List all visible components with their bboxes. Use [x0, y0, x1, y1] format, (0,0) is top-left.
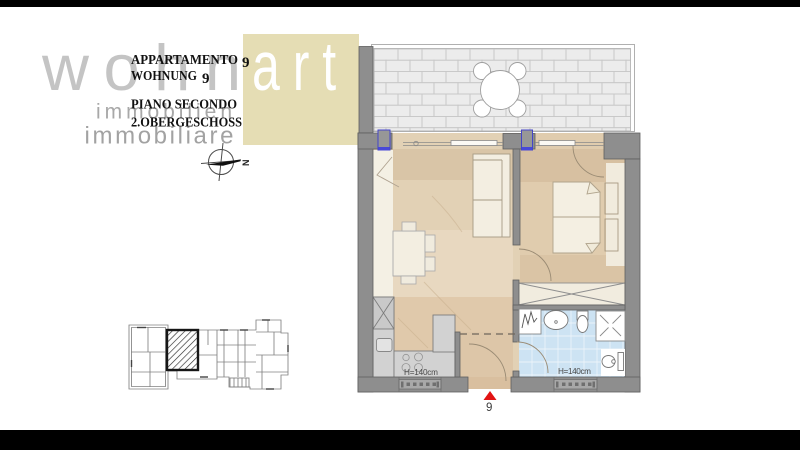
svg-text:WOHNUNG: WOHNUNG	[131, 69, 197, 84]
svg-text:H=140cm: H=140cm	[404, 368, 438, 377]
svg-text:9: 9	[202, 71, 210, 87]
svg-text:N: N	[241, 160, 251, 167]
svg-text:art: art	[252, 27, 349, 105]
svg-text:H=140cm: H=140cm	[558, 367, 591, 376]
svg-text:PIANO SECONDO: PIANO SECONDO	[131, 98, 237, 113]
svg-text:2.OBERGESCHOSS: 2.OBERGESCHOSS	[131, 116, 242, 131]
svg-text:APPARTAMENTO: APPARTAMENTO	[131, 53, 238, 68]
svg-text:9: 9	[242, 55, 250, 71]
svg-text:9: 9	[486, 402, 492, 414]
